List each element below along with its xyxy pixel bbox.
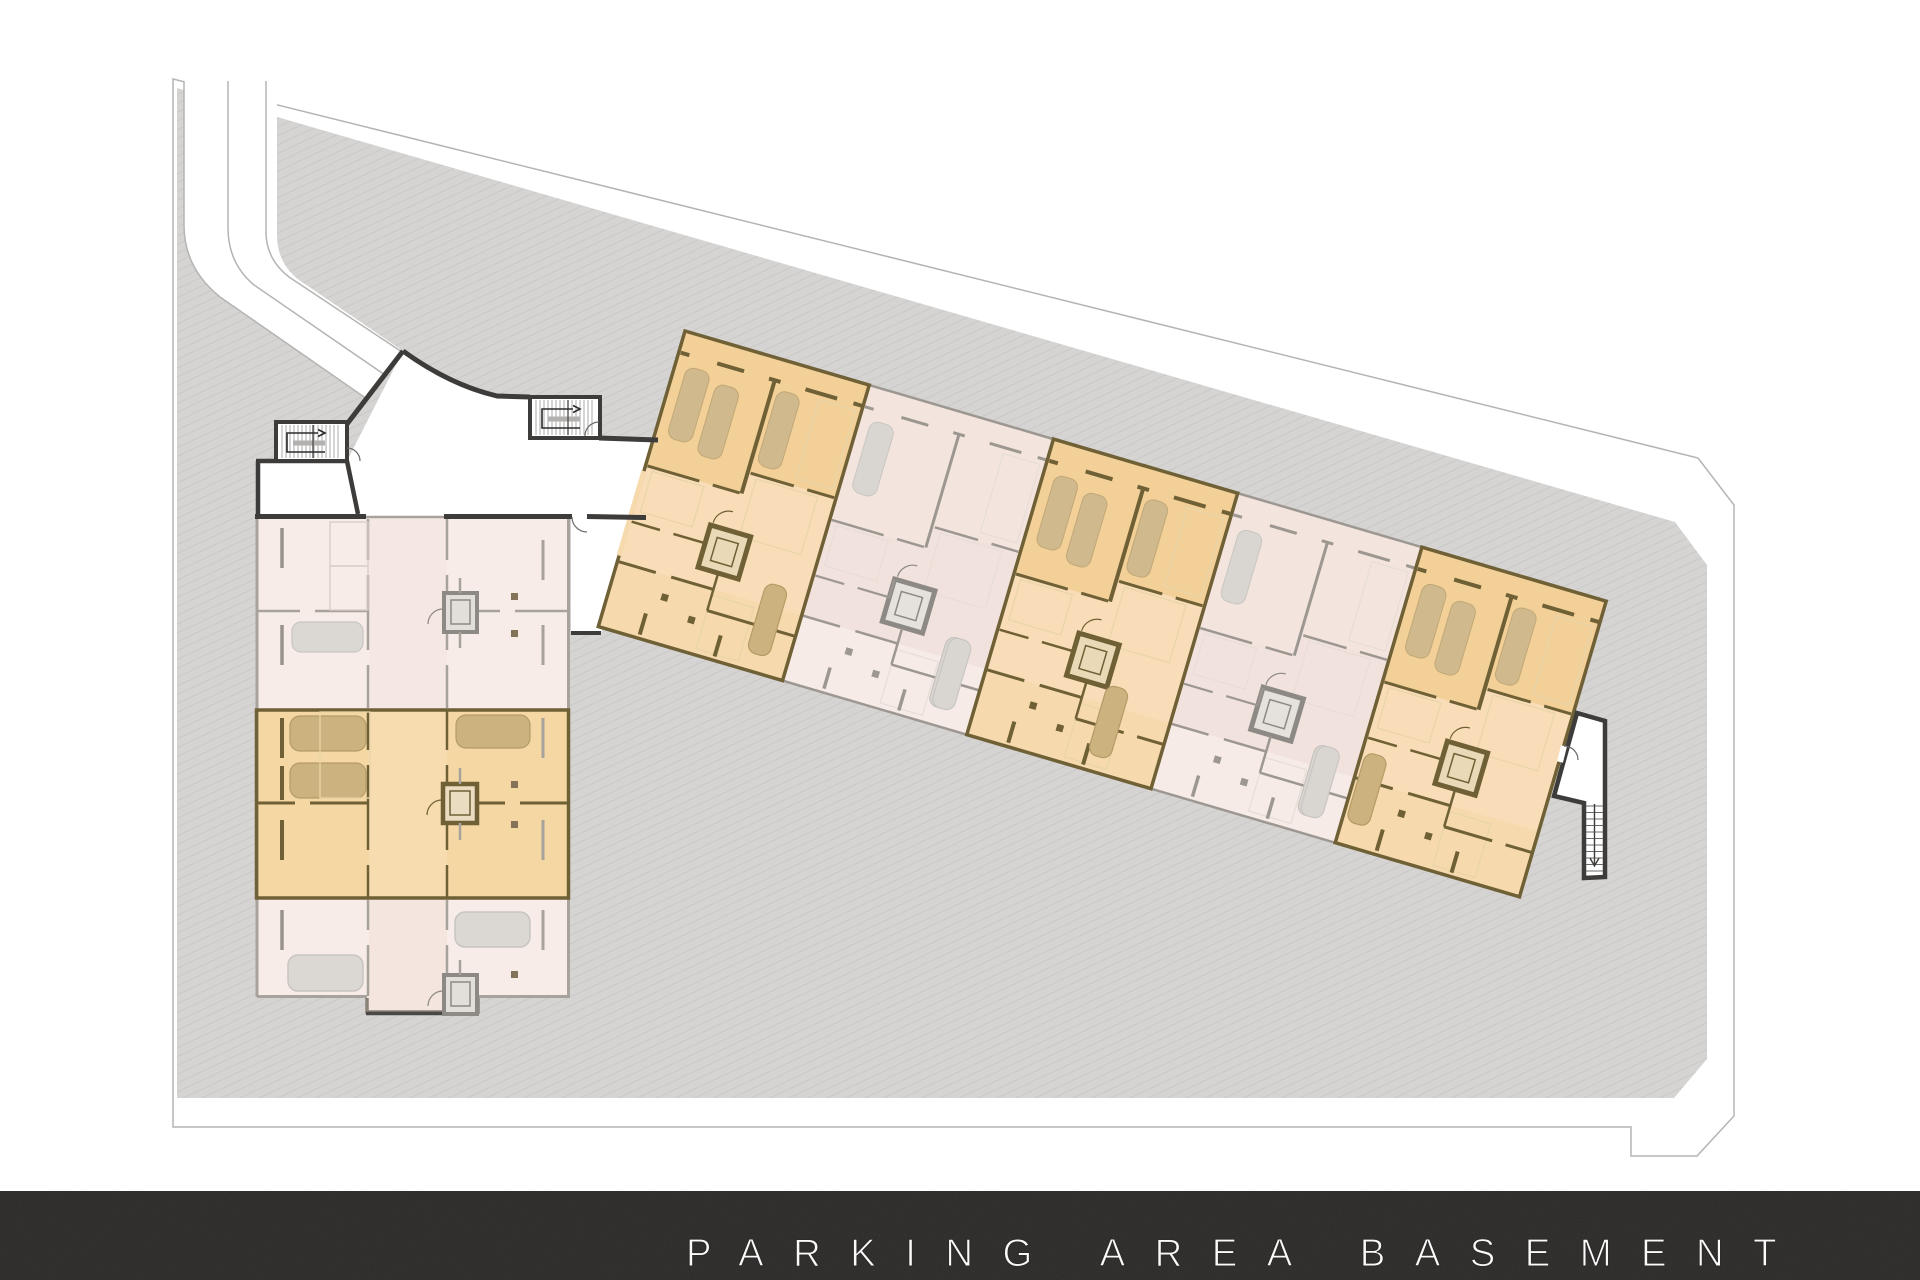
- svg-text:PARKING AREA BASEMENT: PARKING AREA BASEMENT: [686, 1232, 1806, 1275]
